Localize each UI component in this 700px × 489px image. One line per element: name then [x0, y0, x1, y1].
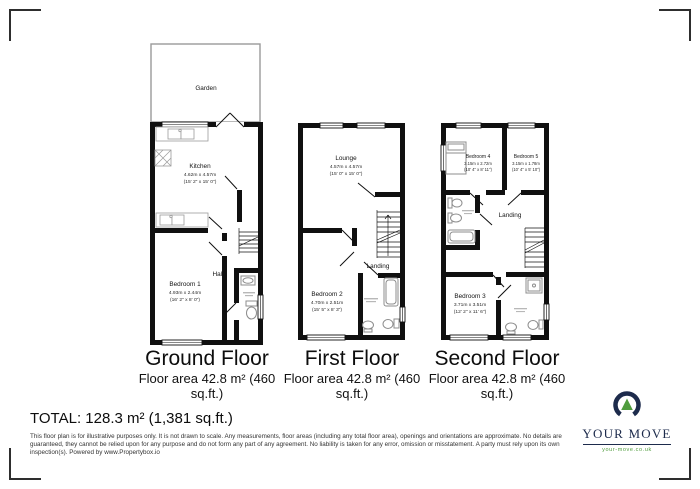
svg-text:4.70m x 2.51m: 4.70m x 2.51m — [311, 300, 343, 306]
svg-text:4.93m x 2.44m: 4.93m x 2.44m — [169, 290, 201, 296]
svg-text:(15' 2" x 15' 0"): (15' 2" x 15' 0") — [184, 179, 217, 185]
svg-text:Bedroom 2: Bedroom 2 — [311, 291, 343, 298]
second-floor-area-line1: Floor area 42.8 m² (460 — [412, 371, 582, 386]
bedroom4-label: Bedroom 4 3.15m x 2.72m (10' 4" x 8' 11"… — [464, 154, 492, 172]
svg-text:Kitchen: Kitchen — [189, 163, 211, 170]
crop-mark-top-right — [659, 9, 691, 41]
svg-text:(12' 2" x 11' 6"): (12' 2" x 11' 6") — [454, 309, 487, 315]
disclaimer-text: This floor plan is for illustrative purp… — [30, 433, 570, 456]
your-move-logo-mark — [609, 390, 645, 420]
logo-brand-name: YOUR MOVE — [573, 426, 681, 442]
kitchen-counter-bottom — [156, 213, 208, 227]
hall-label: Hall — [212, 271, 223, 278]
logo-triangle-icon — [621, 399, 633, 411]
svg-text:(10' 4" x 5' 10"): (10' 4" x 5' 10") — [512, 167, 541, 172]
svg-text:Bedroom 1: Bedroom 1 — [169, 281, 201, 288]
svg-text:(15' 5" x 8' 3"): (15' 5" x 8' 3") — [312, 307, 342, 313]
sf-stairs — [525, 228, 544, 268]
bedroom3-label: Bedroom 3 3.71m x 3.51m (12' 2" x 11' 6"… — [454, 293, 487, 315]
ff-doors — [340, 183, 378, 275]
svg-text:Bedroom 3: Bedroom 3 — [454, 293, 486, 300]
sf-bathroom-fixtures — [448, 198, 475, 243]
first-floor-plan: Lounge 4.57m x 4.57m (15' 0" x 15' 0") L… — [296, 120, 408, 344]
svg-text:Bedroom 4: Bedroom 4 — [466, 154, 491, 160]
illegible-fixture-label — [516, 311, 525, 312]
illegible-fixture-label — [243, 292, 255, 293]
illegible-fixture-label — [245, 295, 253, 296]
svg-text:Lounge: Lounge — [335, 155, 357, 162]
svg-text:(15' 0" x 15' 0"): (15' 0" x 15' 0") — [330, 171, 363, 177]
second-floor-caption: Second Floor Floor area 42.8 m² (460 sq.… — [412, 347, 582, 401]
kitchen-label: Kitchen 4.62m x 4.57m (15' 2" x 15' 0") — [184, 163, 217, 185]
kitchen-counter-top — [156, 127, 208, 141]
svg-text:4.62m x 4.57m: 4.62m x 4.57m — [184, 172, 216, 178]
illegible-fixture-label — [364, 298, 378, 299]
illegible-fixture-label — [464, 213, 472, 214]
second-floor-title: Second Floor — [412, 347, 582, 371]
svg-text:3.15m x 2.72m: 3.15m x 2.72m — [464, 161, 492, 166]
your-move-logo: YOUR MOVE your-move.co.uk — [573, 390, 681, 453]
ff-landing-label: Landing — [367, 263, 390, 270]
bedroom5-label: Bedroom 5 3.15m x 1.78m (10' 4" x 5' 10"… — [512, 154, 541, 172]
second-floor-area-line2: sq.ft.) — [412, 386, 582, 401]
bedroom1-label: Bedroom 1 4.93m x 2.44m (16' 2" x 8' 0") — [169, 281, 201, 303]
garden-label: Garden — [195, 85, 217, 92]
svg-text:(16' 2" x 8' 0"): (16' 2" x 8' 0") — [170, 297, 200, 303]
logo-website: your-move.co.uk — [573, 447, 681, 453]
kitchen-appliance-hatch — [155, 150, 171, 166]
garden: Garden — [151, 44, 260, 122]
illegible-fixture-label — [462, 210, 474, 211]
svg-text:3.15m x 1.78m: 3.15m x 1.78m — [512, 161, 540, 166]
floorplan-page: { "ground_floor": { "title": "Ground Flo… — [0, 0, 700, 489]
svg-text:4.57m x 4.57m: 4.57m x 4.57m — [330, 164, 362, 170]
logo-divider — [583, 444, 671, 445]
svg-text:3.71m x 3.51m: 3.71m x 3.51m — [454, 302, 486, 308]
sf-landing-label: Landing — [499, 212, 522, 219]
lounge-label: Lounge 4.57m x 4.57m (15' 0" x 15' 0") — [330, 155, 363, 177]
svg-text:Bedroom 5: Bedroom 5 — [514, 154, 539, 160]
ground-floor-plan: Garden Kitchen 4.62m x 4.57m (1 — [146, 40, 268, 350]
ff-bathroom-fixtures — [363, 278, 400, 332]
second-floor-plan: Bedroom 4 3.15m x 2.72m (10' 4" x 8' 11"… — [438, 120, 552, 344]
crop-mark-top-left — [9, 9, 41, 41]
illegible-fixture-label — [366, 301, 376, 302]
gf-bathroom-fixtures — [241, 276, 257, 319]
bedroom4-bed — [446, 142, 466, 174]
svg-text:(10' 4" x 8' 11"): (10' 4" x 8' 11") — [464, 167, 492, 172]
gf-stairs — [239, 228, 258, 254]
ff-stairs — [377, 210, 400, 258]
total-area: TOTAL: 128.3 m² (1,381 sq.ft.) — [30, 410, 233, 427]
bedroom2-label: Bedroom 2 4.70m x 2.51m (15' 5" x 8' 3") — [311, 291, 343, 313]
sf-ensuite-fixtures — [506, 278, 544, 334]
illegible-fixture-label — [514, 308, 527, 309]
